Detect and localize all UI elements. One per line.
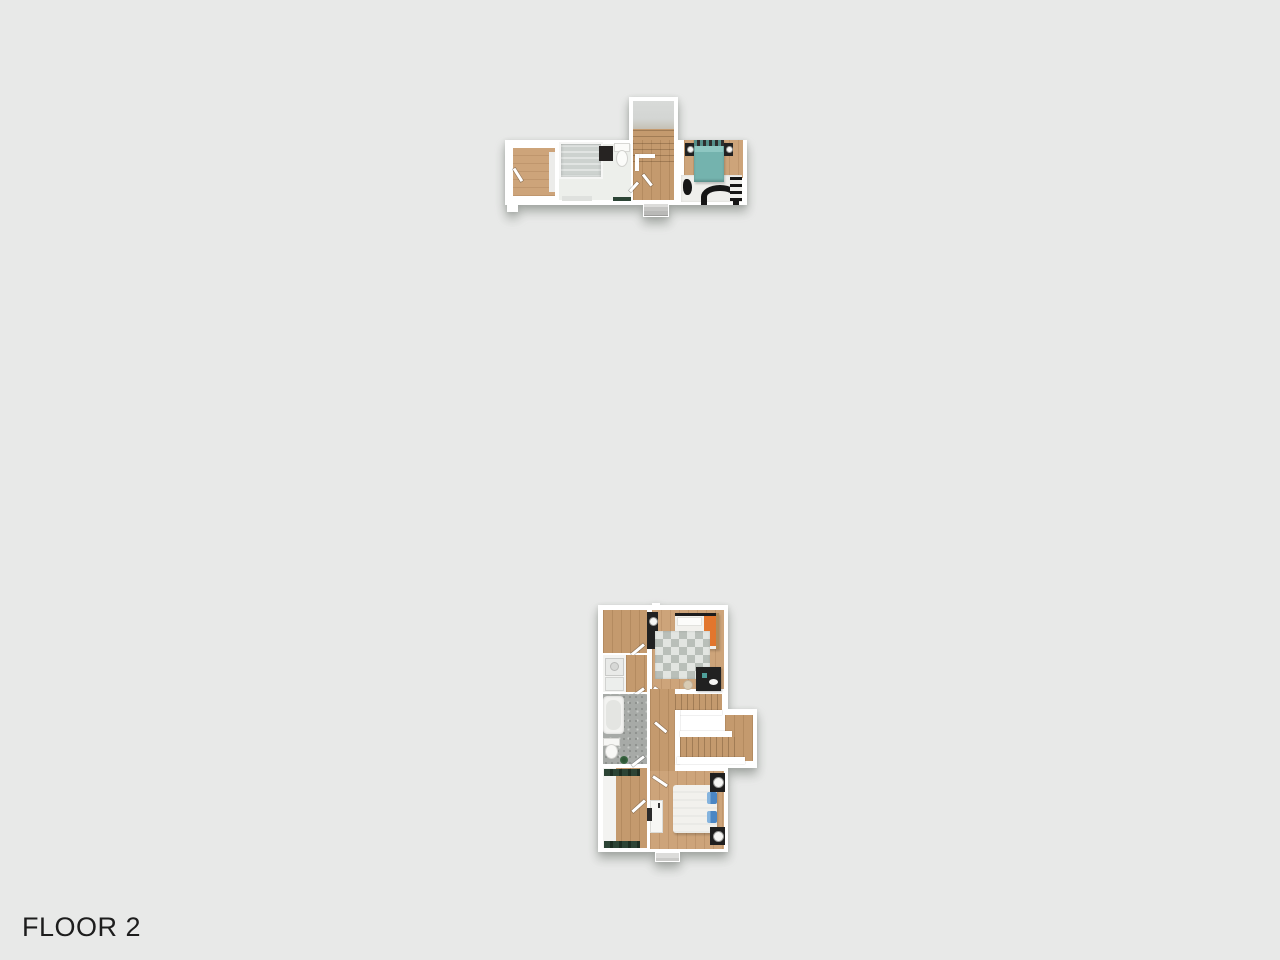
bed-pillow-blue-2 bbox=[707, 811, 717, 823]
washer-door bbox=[610, 662, 619, 671]
bath-mat bbox=[562, 196, 592, 201]
bed-pillows bbox=[695, 146, 723, 152]
entry-step-bottom bbox=[655, 852, 680, 862]
bed-frame-edge bbox=[716, 613, 719, 649]
desk-chair-item bbox=[702, 673, 707, 678]
wall-fixture-dark bbox=[647, 808, 652, 821]
wardrobe-handle bbox=[658, 803, 660, 808]
floor-label: FLOOR 2 bbox=[22, 912, 141, 943]
closet-items-top bbox=[604, 769, 640, 776]
wall-tab bbox=[507, 203, 518, 212]
entry-steps bbox=[643, 203, 669, 217]
desk-laptop bbox=[709, 679, 718, 685]
desk-dark bbox=[696, 667, 721, 691]
floorplan-upper bbox=[505, 97, 755, 222]
stair-railing-post bbox=[635, 154, 639, 171]
rug-blob-motif bbox=[683, 179, 692, 195]
shelf-unit bbox=[605, 677, 624, 691]
staircase-top-flight bbox=[675, 694, 722, 711]
bathtub-large bbox=[559, 142, 603, 179]
vanity-counter bbox=[599, 146, 613, 161]
staircase-lower bbox=[633, 140, 674, 162]
stairwell-upper-landing bbox=[633, 101, 674, 131]
ceiling-light bbox=[649, 617, 658, 626]
lamp-bottom bbox=[713, 831, 724, 842]
wall-tab-top bbox=[652, 603, 660, 607]
bed-pillow-blue-1 bbox=[707, 792, 717, 804]
lamp-right bbox=[726, 146, 733, 153]
floor-stool bbox=[683, 680, 693, 690]
bathtub-basin bbox=[606, 700, 621, 730]
closet-shelving bbox=[603, 768, 616, 848]
green-runner bbox=[613, 197, 631, 201]
bed-pillow-white bbox=[677, 617, 702, 626]
toilet-bowl bbox=[616, 150, 628, 167]
stair-railing-top bbox=[677, 710, 722, 715]
floorplan-page: FLOOR 2 bbox=[0, 0, 1280, 960]
floorplan-lower bbox=[598, 603, 760, 860]
landing-edge bbox=[549, 152, 555, 192]
lamp-left bbox=[687, 146, 694, 153]
rug-stripe-motif bbox=[730, 176, 742, 201]
vestibule-floor bbox=[626, 655, 647, 692]
staircase-lower-flight bbox=[680, 737, 738, 757]
toilet-bowl bbox=[605, 744, 618, 759]
plant bbox=[620, 756, 628, 764]
stair-railing-bottom bbox=[677, 757, 745, 764]
lamp-top bbox=[713, 777, 724, 788]
closet-items-bottom bbox=[604, 841, 640, 848]
